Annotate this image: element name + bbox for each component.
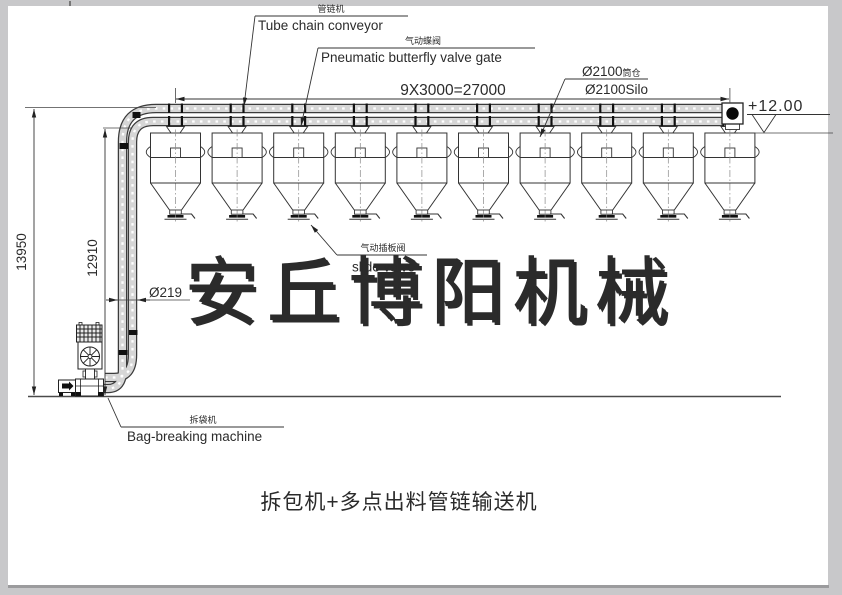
dim-total-height-text: 13950 — [14, 233, 29, 271]
label-bag-breaking-machine-cn: 拆袋机 — [189, 414, 216, 425]
label-bag-breaking-machine-en: Bag-breaking machine — [127, 429, 262, 444]
pipe-flange-mark — [119, 350, 128, 355]
label-slide-valve-en: slide valve — [352, 260, 415, 275]
drawing-title: 拆包机+多点出料管链输送机 — [260, 491, 537, 514]
page-top-tick — [69, 1, 71, 6]
dim-pipe-diameter-text: Ø219 — [149, 285, 182, 300]
dim-silo-spacing-text: 9X3000=27000 — [400, 82, 506, 99]
pipe-flange-mark — [133, 112, 141, 118]
label-butterfly-valve-cn: 气动蝶阀 — [405, 35, 441, 46]
cad-drawing-canvas: 安丘博阳机械 安丘博阳机械 — [0, 0, 842, 595]
pipe-flange-mark — [129, 330, 138, 335]
conveyor-drive-end — [722, 103, 743, 130]
label-slide-valve-cn: 气动插板阀 — [360, 242, 405, 253]
label-tube-chain-conveyor-cn: 管链机 — [317, 3, 344, 14]
elevation-text: +12.00 — [748, 98, 803, 115]
drawing-viewport: 安丘博阳机械 安丘博阳机械 — [0, 0, 842, 595]
label-tube-chain-conveyor-en: Tube chain conveyor — [258, 18, 383, 33]
label-silo-en: Ø2100Silo — [585, 82, 648, 97]
watermark-text: 安丘博阳机械 — [185, 251, 677, 334]
watermark: 安丘博阳机械 安丘博阳机械 — [185, 251, 680, 337]
paper-bottom-shadow — [8, 585, 829, 588]
dim-inlet-height-text: 12910 — [85, 239, 100, 277]
pipe-flange-mark — [120, 143, 129, 149]
drive-sprocket — [726, 107, 738, 119]
label-butterfly-valve-en: Pneumatic butterfly valve gate — [321, 50, 502, 65]
